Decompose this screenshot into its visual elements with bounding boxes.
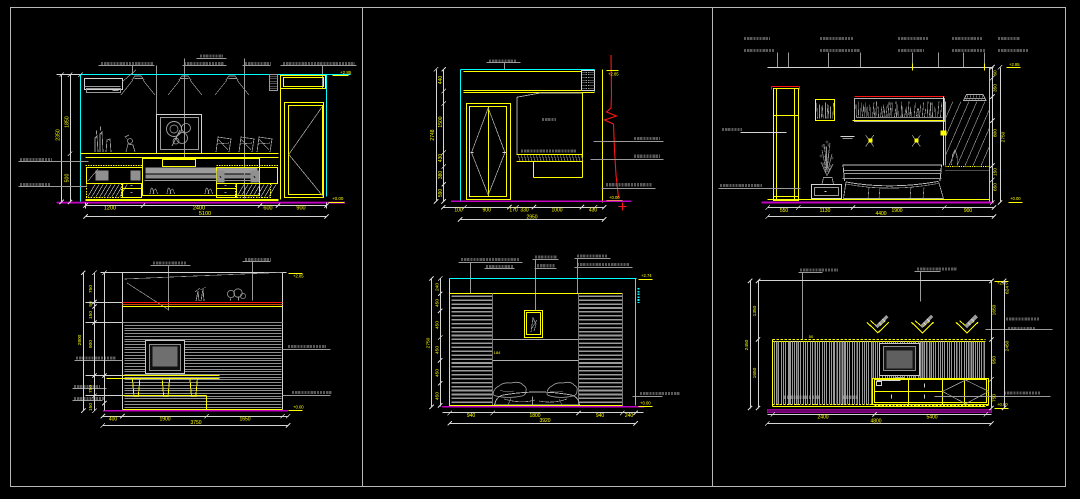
svg-text:3750: 3750 <box>190 420 201 426</box>
svg-text:4400: 4400 <box>875 211 886 217</box>
svg-text:100: 100 <box>454 208 463 214</box>
svg-text:940: 940 <box>467 413 476 419</box>
svg-text:2748: 2748 <box>430 129 436 140</box>
svg-text:+2.74: +2.74 <box>641 273 652 278</box>
svg-text:1350: 1350 <box>752 305 758 316</box>
svg-text:4800: 4800 <box>870 418 881 424</box>
svg-text:+0.00: +0.00 <box>293 405 304 410</box>
svg-text:950: 950 <box>992 356 998 364</box>
svg-text:380: 380 <box>438 171 444 180</box>
svg-text:750: 750 <box>88 385 94 393</box>
svg-text:5100: 5100 <box>199 211 211 217</box>
svg-text:2400: 2400 <box>817 415 828 421</box>
svg-text:750: 750 <box>992 394 998 402</box>
svg-text:150: 150 <box>88 311 94 319</box>
svg-text:450: 450 <box>435 346 441 354</box>
svg-text:1900: 1900 <box>159 416 170 422</box>
svg-text:+2.85: +2.85 <box>340 70 352 75</box>
svg-text:+0.00: +0.00 <box>997 402 1008 407</box>
svg-text:624: 624 <box>1005 286 1011 294</box>
svg-text:440: 440 <box>438 76 444 85</box>
svg-text:50: 50 <box>809 334 814 339</box>
svg-text:2800: 2800 <box>77 334 83 345</box>
svg-text:3920: 3920 <box>539 418 550 424</box>
svg-text:600: 600 <box>263 206 272 212</box>
svg-text:+2.85: +2.85 <box>608 72 619 77</box>
svg-text:1900: 1900 <box>891 208 902 214</box>
svg-text:2450: 2450 <box>1005 340 1011 351</box>
svg-text:+0.00: +0.00 <box>640 401 651 406</box>
svg-text:+2.85: +2.85 <box>293 274 304 279</box>
svg-text:+0.00: +0.00 <box>332 196 344 201</box>
svg-text:240: 240 <box>435 283 441 291</box>
svg-text:5400: 5400 <box>926 415 937 421</box>
svg-text:750: 750 <box>88 285 94 293</box>
svg-text:1000: 1000 <box>551 208 562 214</box>
svg-text:1500: 1500 <box>438 116 444 127</box>
svg-text:450: 450 <box>435 321 441 329</box>
svg-text:330: 330 <box>520 208 529 214</box>
svg-text:450: 450 <box>435 369 441 377</box>
svg-text:2350: 2350 <box>56 129 62 141</box>
svg-text:170: 170 <box>509 208 518 214</box>
svg-text:1130: 1130 <box>820 208 831 214</box>
svg-text:400: 400 <box>109 416 118 422</box>
svg-text:900: 900 <box>296 206 305 212</box>
svg-text:430: 430 <box>589 208 598 214</box>
svg-text:1650: 1650 <box>752 367 758 378</box>
svg-text:2450: 2450 <box>744 339 750 350</box>
svg-text:150: 150 <box>993 168 999 176</box>
svg-text:2750: 2750 <box>426 337 432 348</box>
svg-text:450: 450 <box>435 392 441 400</box>
svg-text:2750: 2750 <box>1001 131 1007 142</box>
svg-text:+0.00: +0.00 <box>1010 196 1021 201</box>
svg-text:650: 650 <box>993 183 999 191</box>
svg-text:50: 50 <box>88 301 94 307</box>
svg-text:1850: 1850 <box>65 116 71 128</box>
svg-text:590: 590 <box>438 189 444 198</box>
svg-text:240: 240 <box>625 413 634 419</box>
svg-text:900: 900 <box>88 340 94 348</box>
svg-text:900: 900 <box>964 208 973 214</box>
svg-text:150: 150 <box>88 403 94 411</box>
svg-text:60: 60 <box>993 70 999 76</box>
svg-text:800: 800 <box>993 129 999 137</box>
svg-text:1650: 1650 <box>239 416 250 422</box>
svg-text:2950: 2950 <box>526 214 537 220</box>
svg-text:350: 350 <box>993 84 999 92</box>
svg-text:1200: 1200 <box>104 206 116 212</box>
svg-text:450: 450 <box>435 299 441 307</box>
svg-text:430: 430 <box>438 154 444 163</box>
svg-text:500: 500 <box>65 174 71 183</box>
svg-text:900: 900 <box>483 208 492 214</box>
svg-text:184: 184 <box>494 350 501 355</box>
svg-text:+0.00: +0.00 <box>609 195 620 200</box>
svg-text:+2.85: +2.85 <box>1009 62 1020 67</box>
svg-text:1650: 1650 <box>992 304 998 315</box>
svg-text:940: 940 <box>596 413 605 419</box>
svg-text:550: 550 <box>780 208 789 214</box>
